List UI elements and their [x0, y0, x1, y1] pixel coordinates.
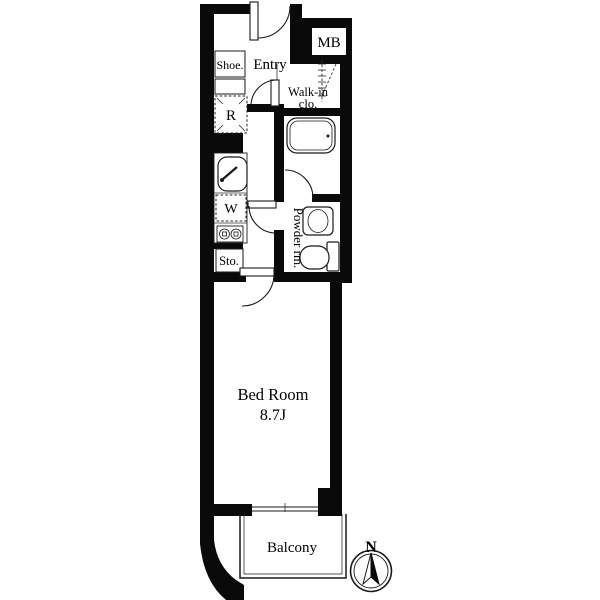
floorplan-page: MB Entry Shoe. Walk-in clo. R	[0, 0, 600, 600]
shoe-label: Shoe.	[217, 58, 244, 72]
mb-label: MB	[317, 35, 340, 51]
entry-label: Entry	[253, 57, 287, 73]
balcony-label: Balcony	[267, 540, 317, 556]
meter-box: MB	[312, 28, 346, 55]
storage-box: Sto.	[216, 249, 243, 272]
entry-door	[250, 2, 258, 40]
walk-in-label-line2: clo.	[299, 97, 317, 111]
fridge-label: R	[226, 108, 236, 124]
wash-basin	[303, 207, 333, 235]
bedroom-label: Bed Room	[237, 385, 308, 404]
fridge-space: R	[215, 96, 247, 133]
powder-room-label: Powder rm.	[291, 208, 306, 269]
bathtub	[287, 118, 335, 153]
floorplan-drawing: MB Entry Shoe. Walk-in clo. R	[0, 0, 600, 600]
bedroom-size-label: 8.7J	[260, 407, 286, 424]
kitchen-sink	[218, 157, 247, 191]
washer-label: W	[224, 202, 238, 217]
shoe-cabinet: Shoe.	[215, 51, 245, 94]
storage-label: Sto.	[219, 254, 239, 268]
window-sliding-door	[252, 503, 318, 516]
washer-space: W	[216, 195, 246, 221]
